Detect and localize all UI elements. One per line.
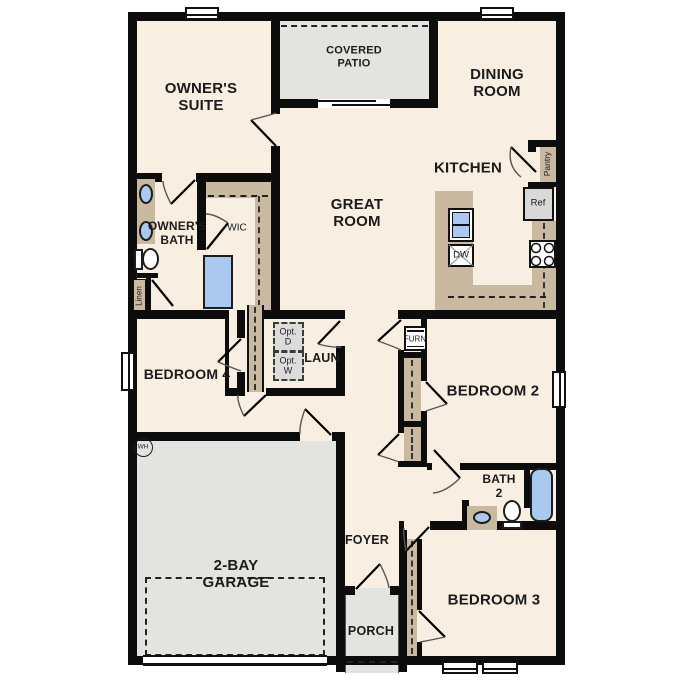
wall xyxy=(336,432,345,672)
room-label-owners-bath: OWNER'S BATH xyxy=(148,220,206,248)
fixture-label-opt-dryer: Opt. D xyxy=(279,327,296,348)
closet-rod-line xyxy=(254,307,256,390)
wall xyxy=(427,463,432,470)
fixture-label-furn: FURN xyxy=(404,334,426,343)
wall xyxy=(336,586,355,595)
wall xyxy=(128,310,225,319)
toilet xyxy=(503,500,521,522)
wall xyxy=(128,432,300,441)
range xyxy=(529,240,556,268)
window xyxy=(121,352,135,391)
wall xyxy=(271,146,280,173)
wall xyxy=(266,388,345,396)
wall xyxy=(128,273,158,278)
kitchen-sink xyxy=(448,208,474,242)
porch-edge-line xyxy=(347,661,397,663)
window xyxy=(442,661,478,674)
room-label-owners-suite: OWNER'S SUITE xyxy=(165,80,237,115)
sink xyxy=(473,511,491,524)
room-label-bedroom4: BEDROOM 4 xyxy=(144,366,231,382)
wall xyxy=(128,12,137,665)
counter-line xyxy=(448,296,546,298)
patio-roof-line xyxy=(281,25,428,27)
room-label-wic: WIC xyxy=(227,222,246,234)
wall xyxy=(430,521,565,530)
room-label-great-room: GREAT ROOM xyxy=(331,196,383,231)
wall xyxy=(225,388,245,396)
room-label-porch: PORCH xyxy=(348,624,394,638)
wall xyxy=(429,12,438,108)
window xyxy=(482,661,518,674)
room-label-bedroom2: BEDROOM 2 xyxy=(447,382,540,399)
room-label-covered-patio: COVERED PATIO xyxy=(326,44,382,69)
wall xyxy=(556,12,565,665)
room-label-bath2: BATH 2 xyxy=(482,473,515,501)
wall xyxy=(196,173,280,182)
floor-plan: COVERED PATIO OWNER'S SUITE DINING ROOM … xyxy=(0,0,687,687)
wall xyxy=(399,530,407,672)
wall xyxy=(398,461,427,467)
room-label-laundry: LAUN xyxy=(304,351,340,365)
wall xyxy=(399,521,404,530)
sliding-door xyxy=(318,99,390,108)
wall xyxy=(421,411,427,467)
fixture-label-opt-washer: Opt. W xyxy=(279,356,296,377)
toilet xyxy=(502,521,522,529)
window xyxy=(185,7,219,20)
wall xyxy=(528,140,536,152)
fixture-label-dw: DW xyxy=(453,251,469,262)
closet-rod-line xyxy=(411,360,413,419)
room-label-foyer: FOYER xyxy=(345,533,389,547)
wall xyxy=(417,539,422,610)
shower xyxy=(203,255,233,309)
room-label-garage: 2-BAY GARAGE xyxy=(202,557,269,592)
wall xyxy=(271,173,280,319)
wall xyxy=(336,310,345,319)
garage-door-opening xyxy=(143,655,327,666)
wall xyxy=(237,310,245,338)
window xyxy=(480,7,514,20)
room-label-bedroom3: BEDROOM 3 xyxy=(448,591,541,608)
room-label-kitchen: KITCHEN xyxy=(434,159,502,176)
closet-rod-line xyxy=(411,429,413,459)
fixture-label-wh: WH xyxy=(138,443,149,450)
wall xyxy=(146,276,151,314)
window xyxy=(552,371,566,408)
fixture-label-pantry: Pantry xyxy=(543,152,553,177)
wall xyxy=(417,642,422,656)
wall xyxy=(271,108,280,114)
fixture-label-ref: Ref xyxy=(531,199,546,210)
fixture-label-linen: Linen xyxy=(134,286,143,306)
room-label-dining-room: DINING ROOM xyxy=(470,66,524,101)
wall xyxy=(271,12,280,108)
bathtub xyxy=(530,468,553,522)
wic-shelf-line xyxy=(258,196,260,306)
sink xyxy=(139,184,153,204)
toilet xyxy=(142,248,159,270)
wall xyxy=(398,310,565,319)
closet-rod-line xyxy=(411,541,413,654)
